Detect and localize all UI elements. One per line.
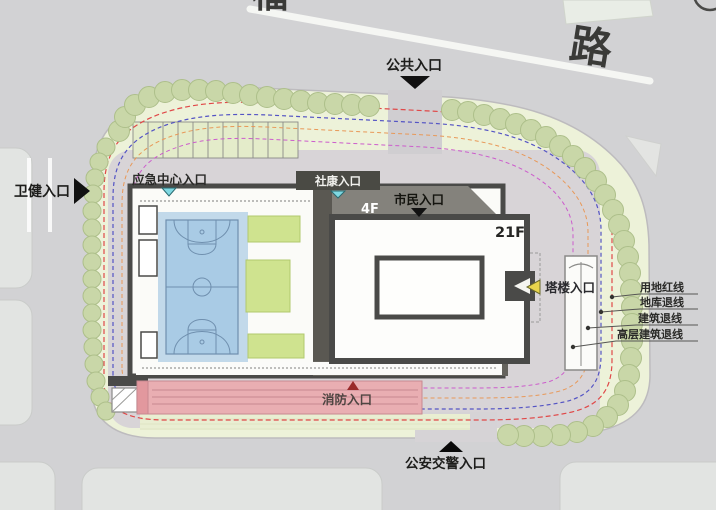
left-parcel bbox=[0, 300, 32, 425]
emergency-entrance-label: 应急中心入口 bbox=[132, 172, 207, 187]
paver-strip bbox=[140, 414, 470, 430]
site-plan-canvas: 公共入口 卫健入口 应急中心入口 社康入口 市民入口 塔楼入口 消防入口 公安交… bbox=[0, 0, 716, 510]
tower-floor-label: 21F bbox=[495, 225, 525, 241]
basketball-court bbox=[158, 212, 248, 362]
side-room bbox=[139, 206, 157, 234]
legend-building-setback-label: 建筑退线 bbox=[638, 311, 682, 325]
road-name-partial-label: 福 bbox=[251, 0, 288, 16]
citizen-entrance-label: 市民入口 bbox=[394, 192, 444, 207]
fire-entrance-label: 消防入口 bbox=[322, 392, 372, 407]
public-entrance-label: 公共入口 bbox=[386, 57, 442, 74]
traffic-island bbox=[626, 136, 661, 176]
side-room bbox=[141, 332, 157, 358]
police-entrance-arrow-icon bbox=[439, 441, 463, 452]
road-name-label: 路 bbox=[566, 19, 616, 74]
legend-highrise-setback-label: 高层建筑退线 bbox=[617, 327, 683, 341]
bottom-right-parcel bbox=[560, 462, 716, 510]
basement-ramp bbox=[565, 256, 597, 370]
side-room bbox=[139, 240, 157, 276]
public-entrance-arrow-icon bbox=[400, 76, 430, 89]
bottom-left-parcel bbox=[0, 462, 55, 510]
police-entrance-label: 公安交警入口 bbox=[405, 455, 486, 472]
site-plan: 公共入口 卫健入口 应急中心入口 社康入口 市民入口 塔楼入口 消防入口 公安交… bbox=[0, 0, 716, 510]
health-entrance-label: 卫健入口 bbox=[14, 183, 70, 200]
corner-arc bbox=[694, 0, 716, 10]
fire-lane bbox=[137, 381, 422, 414]
legend-basement-setback-label: 地库退线 bbox=[640, 295, 684, 309]
community-entrance-label: 社康入口 bbox=[314, 174, 361, 188]
bottom-parcel bbox=[82, 468, 382, 510]
tower-entrance-label: 塔楼入口 bbox=[545, 280, 595, 295]
legend-land-redline-label: 用地红线 bbox=[640, 280, 684, 294]
podium-floor-label: 4F bbox=[361, 202, 379, 217]
